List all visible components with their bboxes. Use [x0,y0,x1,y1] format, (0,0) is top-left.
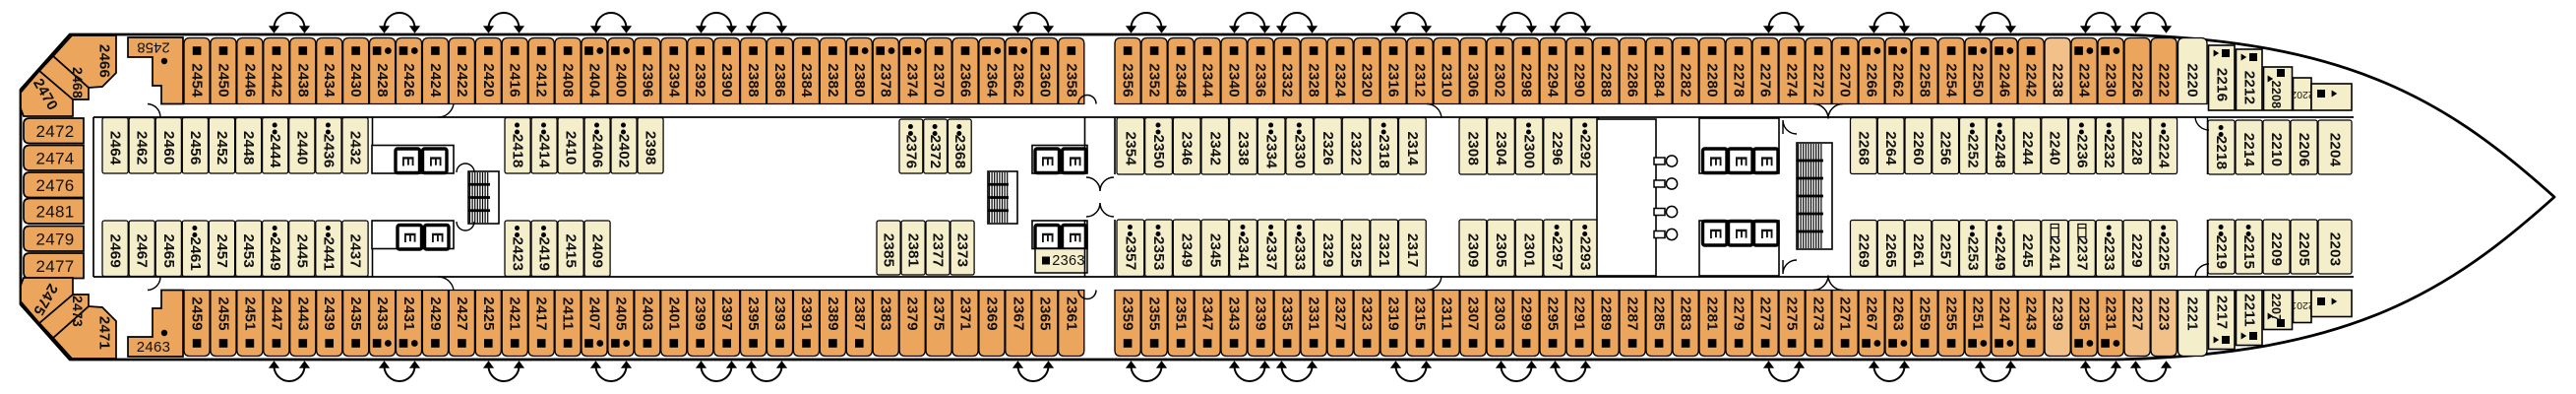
svg-text:2477: 2477 [35,257,74,276]
svg-text:2210: 2210 [2268,133,2285,167]
svg-text:2282: 2282 [1678,63,1694,98]
svg-text:E: E [1706,229,1724,239]
svg-text:2432: 2432 [347,131,364,165]
svg-text:2431: 2431 [400,296,417,331]
svg-text:2204: 2204 [2327,133,2344,167]
svg-text:2226: 2226 [2129,63,2146,98]
svg-text:2240: 2240 [2047,131,2063,165]
svg-text:2409: 2409 [589,234,606,269]
svg-text:2332: 2332 [1279,63,1296,98]
svg-text:2302: 2302 [1492,63,1508,98]
svg-text:E: E [1066,156,1083,166]
svg-text:2209: 2209 [2268,232,2285,267]
svg-text:2291: 2291 [1571,296,1588,331]
svg-text:2474: 2474 [35,149,74,167]
svg-text:2215: 2215 [2240,235,2257,270]
svg-text:2361: 2361 [1063,296,1079,331]
svg-text:2273: 2273 [1810,296,1827,331]
svg-text:2425: 2425 [480,296,497,331]
svg-text:2254: 2254 [1943,63,1960,98]
svg-text:2309: 2309 [1464,233,1481,268]
svg-text:2446: 2446 [241,63,258,98]
svg-text:2333: 2333 [1291,236,1308,271]
svg-text:2317: 2317 [1404,233,1421,268]
svg-text:2437: 2437 [347,234,364,269]
svg-text:2430: 2430 [347,63,364,98]
svg-text:2229: 2229 [2128,233,2145,268]
svg-text:2396: 2396 [639,63,655,98]
svg-text:2417: 2417 [533,296,550,331]
svg-text:2452: 2452 [214,131,230,165]
svg-text:2287: 2287 [1625,296,1641,331]
svg-text:2304: 2304 [1493,132,1509,166]
svg-text:2408: 2408 [560,63,577,98]
svg-text:2259: 2259 [1917,296,1933,331]
svg-text:2423: 2423 [510,237,526,272]
svg-text:2292: 2292 [1577,135,1594,169]
svg-text:2324: 2324 [1332,63,1349,98]
svg-text:2449: 2449 [267,237,283,272]
svg-text:2401: 2401 [665,296,682,331]
svg-text:2360: 2360 [1036,63,1053,98]
svg-text:2471: 2471 [96,316,113,350]
svg-text:2258: 2258 [1917,63,1933,98]
svg-text:2221: 2221 [2184,296,2201,331]
svg-text:2218: 2218 [2213,136,2230,170]
svg-text:2402: 2402 [616,134,633,168]
svg-text:2280: 2280 [1704,63,1721,98]
svg-text:2243: 2243 [2023,296,2040,331]
svg-text:2460: 2460 [160,131,177,165]
svg-text:2466: 2466 [96,44,113,78]
svg-text:2217: 2217 [2214,295,2231,330]
svg-text:E: E [1757,229,1775,239]
svg-text:2223: 2223 [2156,296,2173,331]
svg-text:2327: 2327 [1332,296,1349,331]
svg-text:2277: 2277 [1757,296,1774,331]
svg-text:2252: 2252 [1964,134,1981,168]
svg-text:2362: 2362 [1010,63,1026,98]
svg-text:E: E [399,156,416,166]
svg-text:2344: 2344 [1199,63,1216,98]
svg-text:2422: 2422 [454,63,470,98]
svg-text:2426: 2426 [400,63,417,98]
svg-text:2365: 2365 [1036,296,1053,331]
svg-text:2230: 2230 [2103,63,2119,98]
svg-text:2348: 2348 [1173,63,1190,98]
svg-text:2479: 2479 [35,230,74,248]
svg-text:2248: 2248 [1992,134,2008,168]
svg-text:2211: 2211 [2241,294,2258,327]
svg-text:2206: 2206 [2296,133,2312,167]
svg-text:2403: 2403 [639,296,655,331]
svg-text:2257: 2257 [1937,233,1954,268]
svg-text:2377: 2377 [930,233,947,268]
svg-text:2300: 2300 [1521,135,1538,169]
svg-text:2389: 2389 [825,296,841,331]
svg-text:2220: 2220 [2184,63,2201,98]
svg-text:2476: 2476 [35,176,74,195]
svg-text:2372: 2372 [927,135,944,169]
svg-text:2444: 2444 [267,134,283,168]
svg-text:2373: 2373 [954,233,971,268]
svg-text:2370: 2370 [931,63,948,98]
svg-text:2316: 2316 [1385,63,1402,98]
svg-text:2388: 2388 [745,63,762,98]
svg-text:2343: 2343 [1226,296,1243,331]
svg-text:2214: 2214 [2240,133,2257,167]
svg-text:2379: 2379 [904,296,921,331]
svg-text:2238: 2238 [2050,63,2066,98]
svg-text:2289: 2289 [1598,296,1615,331]
svg-text:2307: 2307 [1465,296,1482,331]
svg-text:2234: 2234 [2076,63,2093,98]
svg-text:2395: 2395 [745,296,762,331]
svg-text:2445: 2445 [293,234,310,269]
svg-text:E: E [1732,229,1749,239]
svg-text:2306: 2306 [1465,63,1482,98]
svg-text:2346: 2346 [1179,132,1196,166]
svg-text:2290: 2290 [1571,63,1588,98]
svg-text:2472: 2472 [35,122,74,141]
svg-text:2281: 2281 [1704,296,1721,331]
svg-text:2242: 2242 [2023,63,2040,98]
svg-text:2353: 2353 [1150,236,1167,271]
svg-text:2262: 2262 [1890,63,1907,98]
svg-text:2435: 2435 [347,296,364,331]
svg-text:2481: 2481 [35,202,74,221]
svg-text:2467: 2467 [134,234,151,269]
svg-text:2397: 2397 [718,296,735,331]
svg-text:2447: 2447 [268,296,284,331]
svg-text:2294: 2294 [1545,63,1562,98]
svg-text:E: E [1732,156,1749,166]
svg-text:2271: 2271 [1837,296,1854,331]
svg-text:2285: 2285 [1651,296,1668,331]
svg-text:2385: 2385 [881,233,897,268]
svg-text:2359: 2359 [1120,296,1136,331]
svg-text:2235: 2235 [2076,296,2093,331]
svg-text:2458: 2458 [137,39,169,56]
svg-text:2366: 2366 [957,63,974,98]
svg-text:2219: 2219 [2213,235,2230,270]
svg-text:2434: 2434 [321,63,337,98]
svg-text:2249: 2249 [1992,236,2008,271]
svg-text:2299: 2299 [1518,296,1535,331]
svg-text:2436: 2436 [320,134,337,168]
svg-text:2419: 2419 [536,237,553,272]
svg-text:2351: 2351 [1173,296,1190,331]
svg-text:2305: 2305 [1493,233,1509,268]
svg-text:2404: 2404 [586,63,603,98]
svg-text:2276: 2276 [1757,63,1774,98]
svg-text:2224: 2224 [2156,134,2173,168]
svg-text:2263: 2263 [1890,296,1907,331]
svg-text:2320: 2320 [1359,63,1376,98]
svg-text:2399: 2399 [692,296,708,331]
svg-text:2266: 2266 [1864,63,1880,98]
svg-text:2318: 2318 [1376,135,1392,169]
svg-text:2311: 2311 [1439,297,1455,331]
svg-text:2296: 2296 [1549,132,1565,166]
svg-text:2384: 2384 [798,63,815,98]
svg-text:2310: 2310 [1439,63,1455,98]
svg-text:2382: 2382 [825,63,841,98]
svg-text:2398: 2398 [643,131,659,165]
svg-text:E: E [400,232,418,243]
svg-text:2424: 2424 [427,63,444,98]
svg-text:2295: 2295 [1545,296,1562,331]
svg-text:2278: 2278 [1731,63,1748,98]
svg-text:2352: 2352 [1146,63,1163,98]
svg-text:2406: 2406 [589,134,606,168]
svg-text:2345: 2345 [1206,233,1223,268]
svg-text:2407: 2407 [586,296,603,331]
svg-text:2268: 2268 [1855,131,1871,165]
svg-text:2418: 2418 [510,134,526,168]
svg-text:2462: 2462 [134,131,151,165]
svg-text:2380: 2380 [851,63,868,98]
svg-text:2369: 2369 [984,296,1001,331]
svg-text:2440: 2440 [293,131,310,165]
svg-text:2411: 2411 [560,297,577,331]
svg-text:2205: 2205 [2296,232,2312,267]
svg-text:2328: 2328 [1306,63,1322,98]
svg-text:2260: 2260 [1910,131,1927,165]
svg-text:2244: 2244 [2019,131,2036,165]
svg-text:2286: 2286 [1625,63,1641,98]
svg-text:2465: 2465 [160,234,177,269]
svg-text:2383: 2383 [878,296,894,331]
svg-text:2301: 2301 [1521,233,1538,268]
svg-text:2441: 2441 [320,237,337,272]
svg-text:2303: 2303 [1492,296,1508,331]
svg-text:2325: 2325 [1348,233,1365,268]
svg-text:2390: 2390 [718,63,735,98]
svg-text:2236: 2236 [2073,134,2090,168]
svg-text:2261: 2261 [1910,233,1927,268]
svg-text:2354: 2354 [1122,132,1138,166]
svg-text:2405: 2405 [612,296,629,331]
svg-text:2363: 2363 [1052,253,1084,269]
svg-text:2239: 2239 [2050,296,2066,331]
svg-text:2420: 2420 [480,63,497,98]
svg-text:2355: 2355 [1146,296,1163,331]
svg-text:E: E [1038,232,1056,243]
svg-text:2267: 2267 [1864,296,1880,331]
svg-text:2356: 2356 [1120,63,1136,98]
svg-text:2274: 2274 [1784,63,1801,98]
svg-text:2392: 2392 [692,63,708,98]
svg-text:2253: 2253 [1964,236,1981,271]
svg-text:2334: 2334 [1263,135,1280,169]
svg-text:2453: 2453 [240,234,257,269]
svg-text:2415: 2415 [563,234,580,269]
svg-text:2438: 2438 [294,63,311,98]
svg-text:E: E [1757,156,1775,166]
svg-text:2364: 2364 [984,63,1001,98]
svg-text:2297: 2297 [1549,236,1565,271]
svg-text:2246: 2246 [1996,63,2013,98]
svg-text:2245: 2245 [2019,233,2036,268]
svg-text:2374: 2374 [904,63,921,98]
svg-text:2469: 2469 [107,234,124,269]
svg-text:2233: 2233 [2101,236,2117,271]
svg-text:E: E [1038,156,1056,166]
svg-text:2222: 2222 [2156,63,2173,98]
svg-text:2459: 2459 [189,296,206,331]
svg-text:2342: 2342 [1206,132,1223,166]
svg-text:2340: 2340 [1226,63,1243,98]
svg-text:2293: 2293 [1577,236,1594,271]
svg-text:2457: 2457 [214,234,230,269]
svg-text:2347: 2347 [1199,296,1216,331]
svg-text:2336: 2336 [1253,63,1269,98]
svg-text:2216: 2216 [2214,68,2231,102]
svg-text:2231: 2231 [2103,296,2119,331]
svg-text:2368: 2368 [951,135,968,169]
svg-text:2298: 2298 [1518,63,1535,98]
svg-text:2375: 2375 [931,296,948,331]
svg-text:2439: 2439 [321,296,337,331]
svg-text:2448: 2448 [240,131,257,165]
svg-text:2443: 2443 [294,296,311,331]
svg-text:2461: 2461 [187,237,204,272]
svg-text:2421: 2421 [507,296,523,331]
svg-text:2331: 2331 [1306,296,1322,331]
svg-text:2376: 2376 [902,135,919,169]
svg-text:2393: 2393 [771,296,788,331]
svg-text:2308: 2308 [1464,132,1481,166]
svg-text:E: E [426,156,444,166]
svg-text:2256: 2256 [1937,131,1954,165]
svg-text:2412: 2412 [533,63,550,98]
svg-text:2335: 2335 [1279,296,1296,331]
svg-text:2350: 2350 [1150,135,1167,169]
svg-text:2394: 2394 [665,63,682,98]
svg-text:2450: 2450 [215,63,232,98]
svg-text:2272: 2272 [1810,63,1827,98]
svg-text:2429: 2429 [427,296,444,331]
svg-text:2371: 2371 [957,296,974,331]
svg-text:2232: 2232 [2101,134,2117,168]
svg-text:2237: 2237 [2073,236,2090,271]
svg-text:2269: 2269 [1855,233,1871,268]
svg-text:2414: 2414 [536,134,553,168]
svg-text:2247: 2247 [1996,296,2013,331]
svg-text:2288: 2288 [1598,63,1615,98]
svg-text:2357: 2357 [1122,236,1138,271]
svg-text:2338: 2338 [1235,132,1252,166]
svg-text:2283: 2283 [1678,296,1694,331]
svg-text:2386: 2386 [771,63,788,98]
svg-text:2400: 2400 [612,63,629,98]
svg-text:2279: 2279 [1731,296,1748,331]
svg-text:2416: 2416 [507,63,523,98]
svg-text:2381: 2381 [905,233,922,268]
svg-text:2270: 2270 [1837,63,1854,98]
svg-text:2321: 2321 [1376,233,1392,268]
svg-text:2225: 2225 [2156,236,2173,271]
svg-text:2265: 2265 [1882,233,1899,268]
svg-text:2349: 2349 [1179,233,1196,268]
svg-text:2250: 2250 [1970,63,1987,98]
svg-text:2284: 2284 [1651,63,1668,98]
svg-text:2314: 2314 [1404,132,1421,166]
svg-text:2241: 2241 [2047,236,2063,271]
svg-text:2329: 2329 [1319,233,1336,268]
svg-text:E: E [1066,232,1083,243]
svg-text:2315: 2315 [1412,296,1429,331]
svg-text:2442: 2442 [268,63,284,98]
svg-text:2454: 2454 [189,63,206,98]
svg-text:2337: 2337 [1263,236,1280,271]
svg-text:2451: 2451 [241,296,258,331]
svg-text:2326: 2326 [1319,132,1336,166]
svg-text:2428: 2428 [374,63,391,98]
svg-text:2208: 2208 [2269,81,2283,109]
svg-text:2275: 2275 [1784,296,1801,331]
svg-text:2330: 2330 [1291,135,1308,169]
svg-text:2468: 2468 [70,67,86,98]
svg-text:2433: 2433 [374,296,391,331]
svg-text:2203: 2203 [2327,232,2344,267]
svg-text:2455: 2455 [215,296,232,331]
svg-text:2456: 2456 [187,131,204,165]
svg-text:2322: 2322 [1348,132,1365,166]
svg-text:2464: 2464 [107,131,124,165]
svg-text:2212: 2212 [2241,71,2258,105]
svg-text:2463: 2463 [137,339,171,356]
svg-text:2201: 2201 [2291,299,2314,311]
svg-text:2427: 2427 [454,296,470,331]
svg-text:E: E [428,232,446,243]
svg-text:2319: 2319 [1385,296,1402,331]
svg-text:2367: 2367 [1010,296,1026,331]
svg-text:2473: 2473 [70,295,86,327]
svg-text:2228: 2228 [2128,131,2145,165]
svg-text:2264: 2264 [1882,131,1899,165]
svg-text:2339: 2339 [1253,296,1269,331]
svg-text:2391: 2391 [798,296,815,331]
svg-text:E: E [1706,156,1724,166]
svg-text:2227: 2227 [2129,296,2146,331]
svg-text:2202: 2202 [2291,89,2314,100]
svg-text:2358: 2358 [1063,63,1079,98]
svg-text:2255: 2255 [1943,296,1960,331]
svg-text:2251: 2251 [1970,296,1987,331]
svg-text:2387: 2387 [851,296,868,331]
svg-text:2410: 2410 [563,131,580,165]
svg-text:2378: 2378 [878,63,894,98]
svg-text:2312: 2312 [1412,63,1429,98]
svg-text:2323: 2323 [1359,296,1376,331]
svg-text:2341: 2341 [1235,236,1252,271]
